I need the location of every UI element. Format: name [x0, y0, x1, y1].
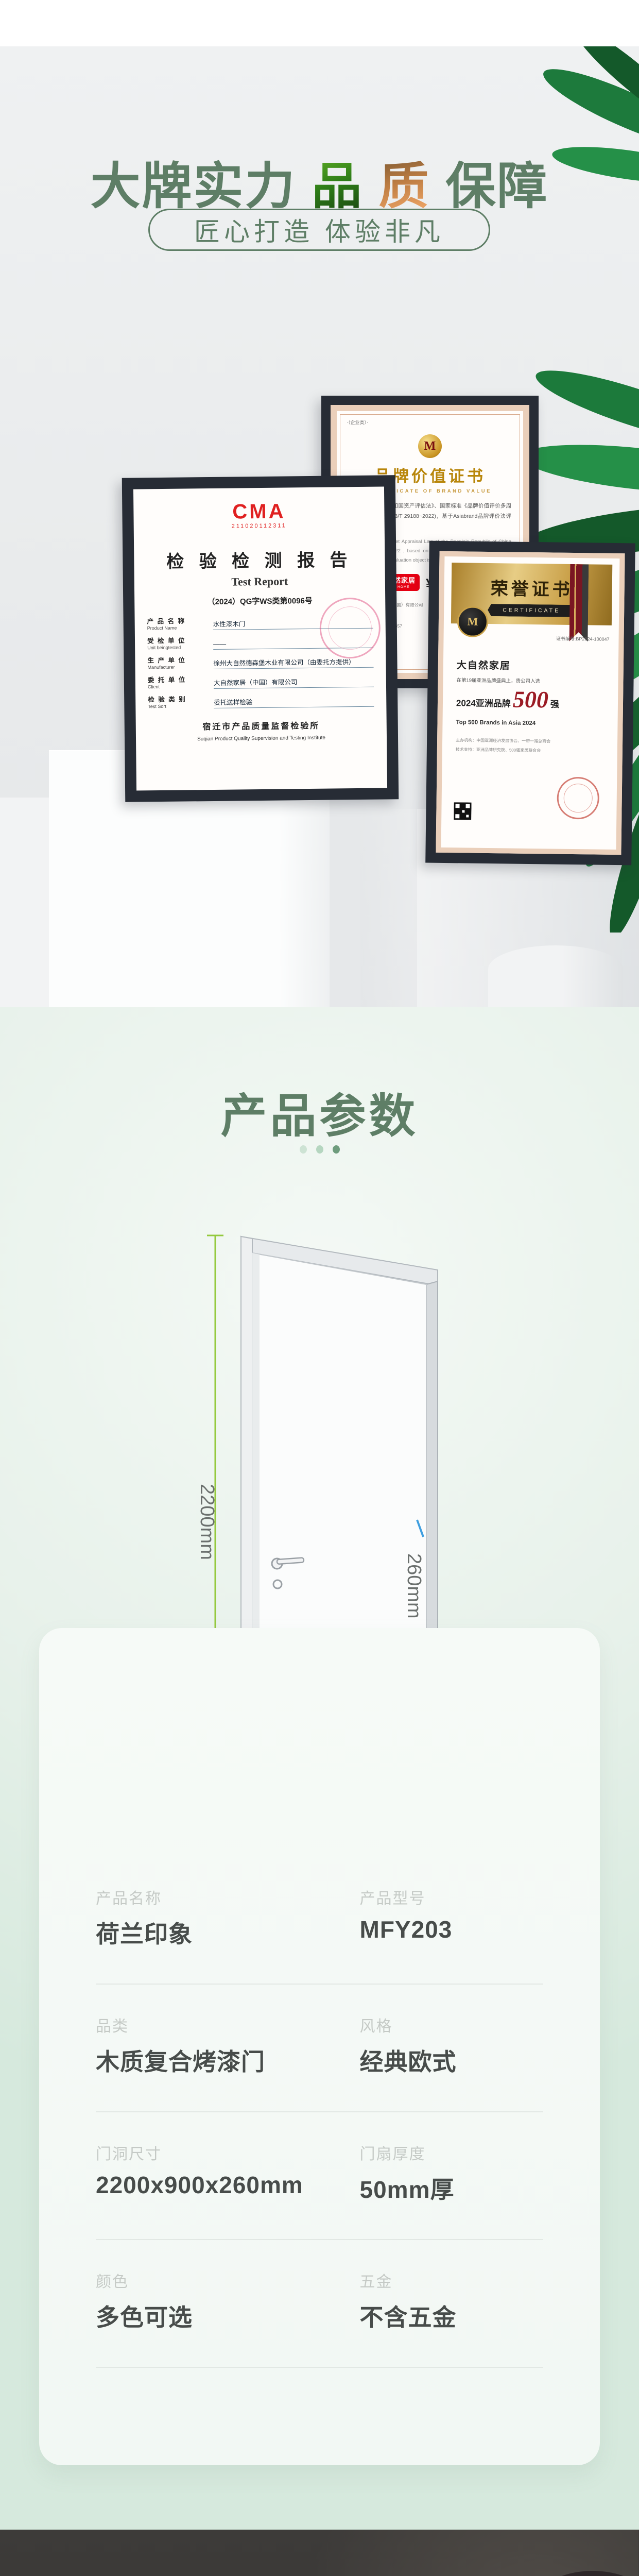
- honor-paper: 荣誉证书 CERTIFICATE M 证书编号:BP2024-100047 大自…: [436, 551, 625, 855]
- medal-icon: M: [418, 434, 442, 458]
- hero-title-lead: 大牌实力: [91, 158, 297, 214]
- honor-award-en: Top 500 Brands in Asia 2024: [456, 719, 536, 726]
- award-prefix: 2024亚洲品牌: [456, 696, 511, 709]
- param-value: MFY203: [360, 1916, 544, 1943]
- brand-value-category: ·（企业类）·: [347, 419, 368, 426]
- param-cell: 门洞尺寸 2200x900x260mm: [96, 2141, 320, 2205]
- certificate-test-report: CMA 211020112311 检 验 检 测 报 告 Test Report…: [122, 475, 399, 802]
- field-label-en: Unit beingtested: [147, 645, 213, 650]
- field-label-cn: 产 品 名 称: [147, 615, 213, 625]
- service-section: 金保姆服务 全国1000+实体门店支持 咨询下单 ›: [0, 2530, 639, 2576]
- param-cell: 颜色 多色可选: [96, 2269, 320, 2333]
- ribbon-icon: [569, 564, 589, 641]
- param-row: 品类 木质复合烤漆门 风格 经典欧式: [96, 2013, 543, 2112]
- door-depth-label: 260mm: [403, 1553, 425, 1619]
- honor-brand: 大自然家居: [457, 657, 511, 672]
- honor-medal-icon: M: [457, 606, 489, 637]
- medal-letter: M: [424, 439, 436, 453]
- params-section: 产品参数 2200mm 260mm: [0, 1007, 639, 2530]
- param-cell: 品类 木质复合烤漆门: [96, 2013, 320, 2077]
- pedestal-step: [0, 798, 49, 1007]
- hero-section: 大牌实力 品 质 保障 匠心打造 体验非凡: [0, 46, 639, 1007]
- award-suffix: 强: [550, 697, 559, 709]
- field-value: 委托送样检验: [214, 696, 374, 708]
- param-cell: 产品名称 荷兰印象: [96, 1886, 320, 1950]
- customer-service-agent: [351, 2530, 639, 2576]
- door-height-label: 2200mm: [196, 1484, 218, 1560]
- param-value: 2200x900x260mm: [96, 2171, 320, 2199]
- hero-title-zhi: 质: [378, 158, 430, 214]
- field-row: 委 托 单 位 Client 大自然家居（中国）有限公司: [148, 672, 374, 690]
- test-report-title: 检 验 检 测 报 告: [146, 546, 372, 573]
- honor-medal-letter: M: [467, 615, 478, 628]
- param-cell: 五金 不含五金: [320, 2269, 544, 2333]
- param-row: 颜色 多色可选 五金 不含五金: [96, 2269, 543, 2368]
- param-value: 木质复合烤漆门: [96, 2043, 320, 2077]
- honor-certificate-ribbon: CERTIFICATE: [488, 604, 575, 617]
- top-white-band: [0, 0, 639, 46]
- field-label-en: Client: [148, 684, 214, 689]
- dot-icon: [333, 1145, 340, 1154]
- honor-line1: 在第19届亚洲品牌盛典上，贵公司入选: [456, 676, 540, 684]
- param-label: 门扇厚度: [360, 2141, 544, 2164]
- params-card: 产品名称 荷兰印象 产品型号 MFY203 品类 木质复合烤漆门 风格 经典欧式: [39, 1628, 600, 2465]
- field-label-en: Product Name: [147, 625, 213, 631]
- hero-title-pin: 品: [312, 158, 364, 214]
- param-label: 五金: [360, 2269, 544, 2292]
- test-report-org-en: Suqian Product Quality Supervision and T…: [148, 735, 374, 743]
- product-detail-page: 大牌实力 品 质 保障 匠心打造 体验非凡: [0, 0, 639, 2576]
- param-label: 风格: [360, 2013, 544, 2036]
- field-label-cn: 委 托 单 位: [148, 674, 214, 684]
- honor-cert-no: 证书编号:BP2024-100047: [556, 635, 610, 642]
- red-stamp-icon: [557, 777, 599, 820]
- field-label-cn: 受 检 单 位: [147, 635, 213, 645]
- param-value: 不含五金: [360, 2299, 544, 2333]
- field-row: 检 验 类 别 Test Sort 委托送样检验: [148, 692, 374, 709]
- param-cell: 风格 经典欧式: [320, 2013, 544, 2077]
- pink-stamp: [319, 598, 381, 659]
- param-cell: 产品型号 MFY203: [320, 1886, 544, 1950]
- test-report-subtitle: Test Report: [147, 574, 373, 590]
- title-dots: [0, 1145, 639, 1154]
- field-label-cn: 生 产 单 位: [147, 654, 213, 665]
- cma-logo: CMA: [146, 500, 372, 523]
- field-label-cn: 检 验 类 别: [148, 693, 214, 704]
- param-label: 门洞尺寸: [96, 2141, 320, 2164]
- field-label-en: Manufacturer: [148, 664, 214, 670]
- honor-small1: 主办机构：中国亚洲经济发展协会、一带一路总商会: [456, 736, 550, 746]
- param-value: 50mm厚: [360, 2171, 544, 2205]
- param-cell: 门扇厚度 50mm厚: [320, 2141, 544, 2205]
- param-label: 产品名称: [96, 1886, 320, 1908]
- dot-icon: [316, 1145, 323, 1154]
- certificate-honor: 荣誉证书 CERTIFICATE M 证书编号:BP2024-100047 大自…: [425, 541, 635, 866]
- params-title: 产品参数: [0, 1078, 639, 1145]
- cma-number: 211020112311: [146, 522, 372, 531]
- qr-code-icon: [454, 802, 471, 820]
- param-label: 颜色: [96, 2269, 320, 2292]
- honor-award-line: 2024亚洲品牌 500 强: [456, 689, 559, 709]
- hero-subtitle-pill: 匠心打造 体验非凡: [148, 209, 490, 251]
- param-label: 品类: [96, 2013, 320, 2036]
- test-report-paper: CMA 211020112311 检 验 检 测 报 告 Test Report…: [133, 486, 387, 790]
- field-label-en: Test Sort: [148, 703, 214, 709]
- param-row: 门洞尺寸 2200x900x260mm 门扇厚度 50mm厚: [96, 2141, 543, 2240]
- honor-small2: 技术支持：亚洲品牌研究院、500强家居联合会: [456, 745, 550, 755]
- param-row: 产品名称 荷兰印象 产品型号 MFY203: [96, 1886, 543, 1985]
- test-report-org-cn: 宿迁市产品质量监督检验所: [148, 718, 374, 733]
- param-value: 多色可选: [96, 2299, 320, 2333]
- field-value: 大自然家居（中国）有限公司: [214, 676, 374, 689]
- award-500: 500: [513, 690, 548, 710]
- param-value: 经典欧式: [360, 2043, 544, 2077]
- pedestal-cylinder: [488, 945, 623, 1007]
- dot-icon: [300, 1145, 307, 1154]
- param-value: 荷兰印象: [96, 1916, 320, 1950]
- param-label: 产品型号: [360, 1886, 544, 1908]
